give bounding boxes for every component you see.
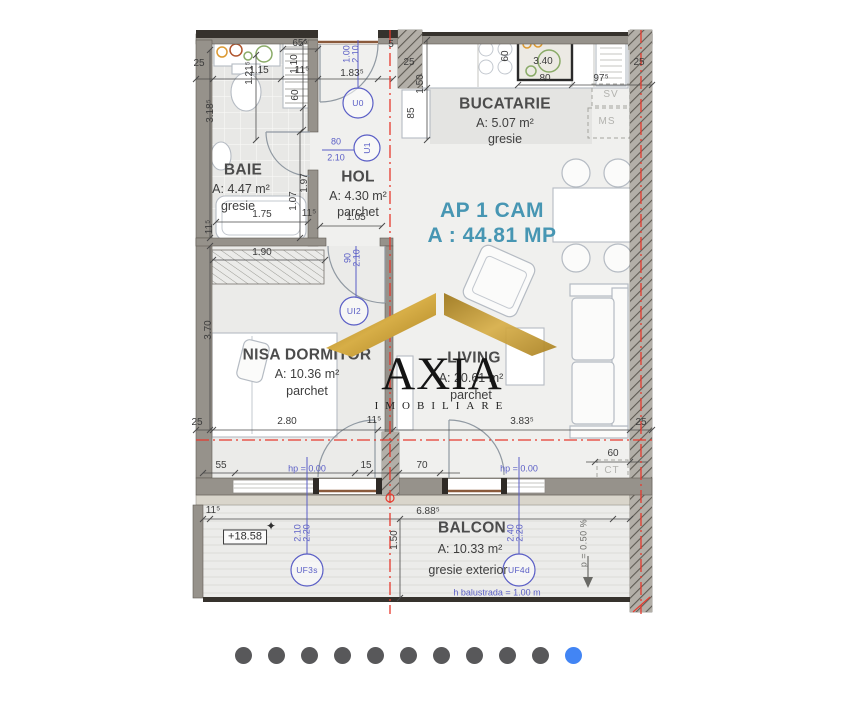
bedroom-top-wall-stub [380,238,393,246]
carousel-dot[interactable] [235,647,252,664]
dining-table [553,188,638,242]
carousel-dot[interactable] [499,647,516,664]
balcony-sill-band [196,495,652,505]
carousel-dot[interactable] [433,647,450,664]
vanity-counter [214,42,280,66]
kitchen-zone [430,86,592,144]
kitchen-cabinet [402,90,430,138]
jamb [376,478,382,494]
carousel-dot[interactable] [268,647,285,664]
dining-chair [562,159,590,187]
bathtub [216,196,306,240]
carousel-dot[interactable] [466,647,483,664]
carousel-dot-active[interactable] [565,647,582,664]
corner-pier-hatch [628,30,652,50]
bed [212,333,337,437]
bath-partition-lower [308,170,318,246]
coffee-table [506,328,544,385]
tv-stand [397,356,413,430]
listing-photo-viewer: AP 1 CAM A : 44.81 MP 251.1511⁵1.21⁵65⁵1… [0,0,844,720]
dining-chair [604,244,632,272]
top-wall-edge [400,32,652,36]
balcony-left-wall [193,505,203,598]
bedroom-top-wall [196,238,326,246]
sofa-cushion [572,362,614,424]
dining-chair [604,159,632,187]
window-uf3s [233,480,319,493]
carousel-dot[interactable] [400,647,417,664]
sofa-armrest [570,426,628,438]
bath-partition-upper [308,40,318,132]
wardrobe [212,250,324,284]
window-tag-circle [503,554,535,586]
door-tag-circle [343,88,373,118]
washbasin [211,142,231,170]
window-uf4d [503,479,545,493]
kitchen-pier-hatch [398,30,422,88]
jamb [313,478,319,494]
sofa-cushion [572,298,614,360]
floor-plan-svg [0,0,844,720]
door-tag-circle [340,297,368,325]
door-tag-circle [354,135,380,161]
jamb [442,478,448,494]
balcony-railing [203,597,630,602]
carousel-dot[interactable] [367,647,384,664]
carousel-dot[interactable] [301,647,318,664]
carousel-dot[interactable] [532,647,549,664]
window-tag-circle [291,554,323,586]
jamb [501,478,507,494]
gallery-dot-carousel [235,647,582,664]
dining-chair [562,244,590,272]
fridge [596,40,626,86]
carousel-dot[interactable] [334,647,351,664]
